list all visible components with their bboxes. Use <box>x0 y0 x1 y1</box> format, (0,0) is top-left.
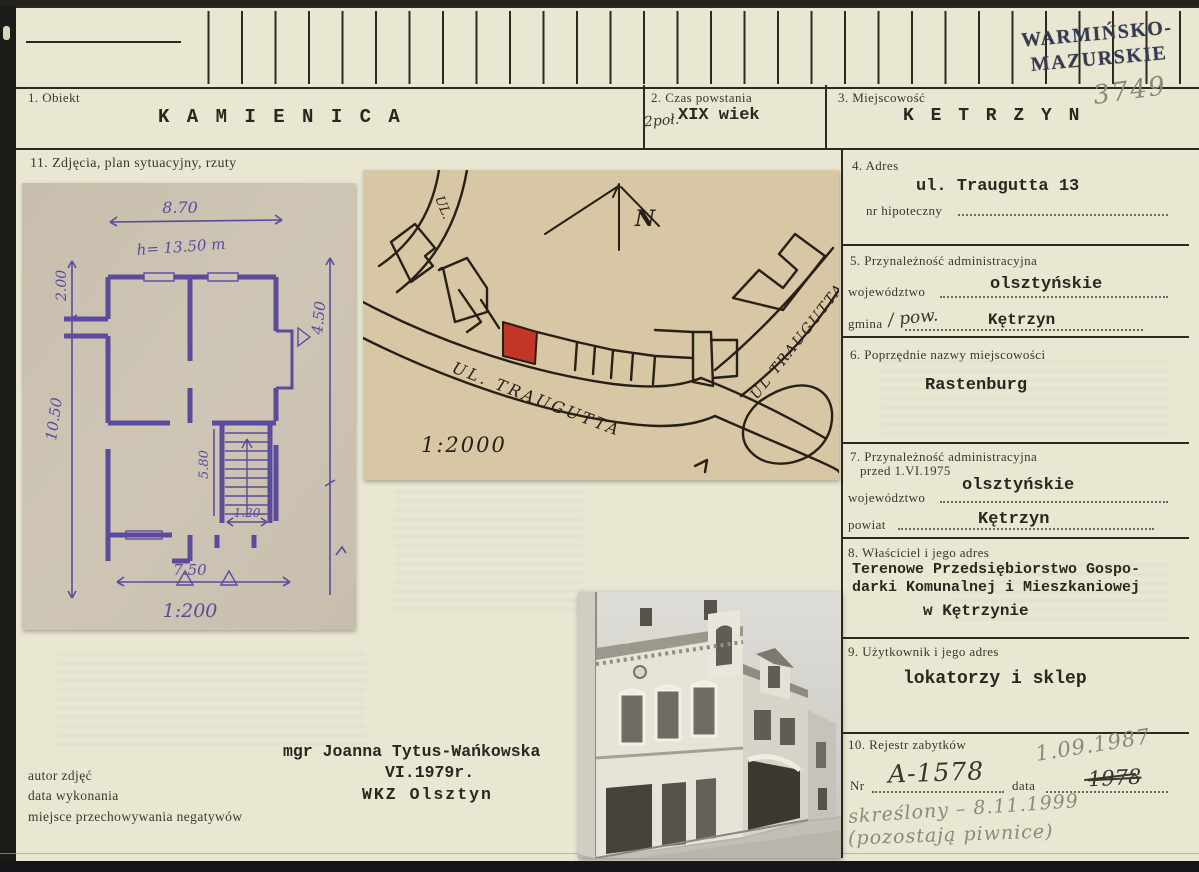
field4-label: 4. Adres <box>852 158 899 174</box>
site-scale: 1:2000 <box>421 433 507 457</box>
field1-value: K A M I E N I C A <box>158 106 403 128</box>
header-divider-2 <box>825 85 827 150</box>
header-bottom-rule <box>16 148 1199 150</box>
field7-voivodeship-value: olsztyńskie <box>962 476 1074 495</box>
scan-edge-bottom <box>0 861 1199 872</box>
field7-powiat-label: powiat <box>848 517 886 533</box>
field5-gmina-line <box>905 329 1143 331</box>
plan-dim-right: 4.50 <box>308 300 330 337</box>
field6-label: 6. Poprzędnie nazwy miejscowości <box>850 347 1045 363</box>
field5-voivodeship-value: olsztyńskie <box>990 275 1102 294</box>
field2-value: XIX wiek <box>678 106 760 125</box>
field8-line2: darki Komunalnej i Mieszkaniowej <box>852 579 1140 596</box>
field10-date-label: data <box>1012 778 1035 794</box>
floor-plan-drawing: 8.70 h= 13.50 m 2.00 10.50 4.50 5.80 1.2… <box>22 183 355 630</box>
field10-nr-value: A-1578 <box>888 756 985 788</box>
section-rule <box>843 442 1189 444</box>
plan-dim-stair: 5.80 <box>197 450 212 479</box>
section-rule <box>843 336 1189 338</box>
field5-voivodeship-line <box>940 296 1168 298</box>
field7-powiat-value: Kętrzyn <box>978 510 1049 529</box>
field8-label: 8. Właściciel i jego adres <box>848 545 989 561</box>
scan-edge-left <box>0 0 16 872</box>
credits-label-date: data wykonania <box>28 786 242 806</box>
field4-hipo-line <box>958 214 1168 216</box>
plan-scale: 1:200 <box>163 600 218 622</box>
field9-value: lokatorzy i sklep <box>903 669 1087 689</box>
site-plan-drawing: N UL. UL. TRAUGUTTA UL TRAUGUTTA 1:2000 <box>363 170 839 480</box>
field7-voivodeship-label: województwo <box>848 490 925 506</box>
plan-dim-top: 8.70 <box>162 198 198 217</box>
bleedthrough-smudge <box>395 490 585 610</box>
section-rule <box>843 637 1189 639</box>
bleedthrough-smudge <box>880 360 1170 435</box>
credits-label-author: autor zdjęć <box>28 766 242 786</box>
north-arrow-icon: N <box>634 206 656 232</box>
field5-gmina-value: Kętrzyn <box>988 311 1055 329</box>
field2-handwritten: 2poł. <box>643 111 680 130</box>
field3-label: 3. Miejscowość <box>838 90 925 106</box>
field8-line3: w Kętrzynie <box>923 602 1029 620</box>
credits-label-negatives: miejsce przechowywania negatywów <box>28 807 242 827</box>
field10-nr-line <box>872 791 1004 793</box>
field5-voivodeship-label: województwo <box>848 284 925 300</box>
field10-nr-label: Nr <box>850 778 865 794</box>
field7-voivodeship-line <box>940 501 1168 503</box>
field5-gmina-label: gmina <box>848 316 883 332</box>
field11-label: 11. Zdjęcia, plan sytuacyjny, rzuty <box>30 156 237 172</box>
field10-label: 10. Rejestr zabytków <box>848 737 966 753</box>
credit-place: WKZ Olsztyn <box>362 785 493 804</box>
field4-hipo-label: nr hipoteczny <box>866 203 942 219</box>
field10-date-new: 1.09.1987 <box>1034 724 1152 766</box>
field7-label2: przed 1.VI.1975 <box>860 463 951 479</box>
field6-value: Rastenburg <box>925 376 1027 395</box>
section-rule <box>843 537 1189 539</box>
credit-name: mgr Joanna Tytus-Wańkowska <box>283 742 540 761</box>
heritage-record-card: WARMIŃSKO- MAZURSKIE 3749 1. Obiekt K A … <box>0 0 1199 872</box>
field2-label: 2. Czas powstania <box>651 90 752 106</box>
building-photo <box>578 592 841 858</box>
column-divider <box>841 150 843 858</box>
plan-dim-bottom: 7.50 <box>173 561 207 579</box>
section-rule <box>843 244 1189 246</box>
field8-line1: Terenowe Przedsiębiorstwo Gospo- <box>852 561 1140 578</box>
field1-label: 1. Obiekt <box>28 90 80 106</box>
plan-dim-door: 1.20 <box>234 506 261 520</box>
field3-value: K E T R Z Y N <box>903 106 1082 126</box>
field4-value: ul. Traugutta 13 <box>916 177 1079 196</box>
field5-label: 5. Przynależność administracyjna <box>850 253 1037 269</box>
bleedthrough-smudge <box>55 650 365 745</box>
credits-labels: autor zdjęć data wykonania miejsce przec… <box>28 766 242 827</box>
ruler-midline <box>26 41 181 43</box>
plan-dim-left-top: 2.00 <box>54 270 70 302</box>
credit-date: VI.1979r. <box>385 763 474 782</box>
field9-label: 9. Użytkownik i jego adres <box>848 644 999 660</box>
field5-gmina-handwritten: / pow. <box>887 305 939 330</box>
scan-edge-left-speck <box>3 26 10 40</box>
